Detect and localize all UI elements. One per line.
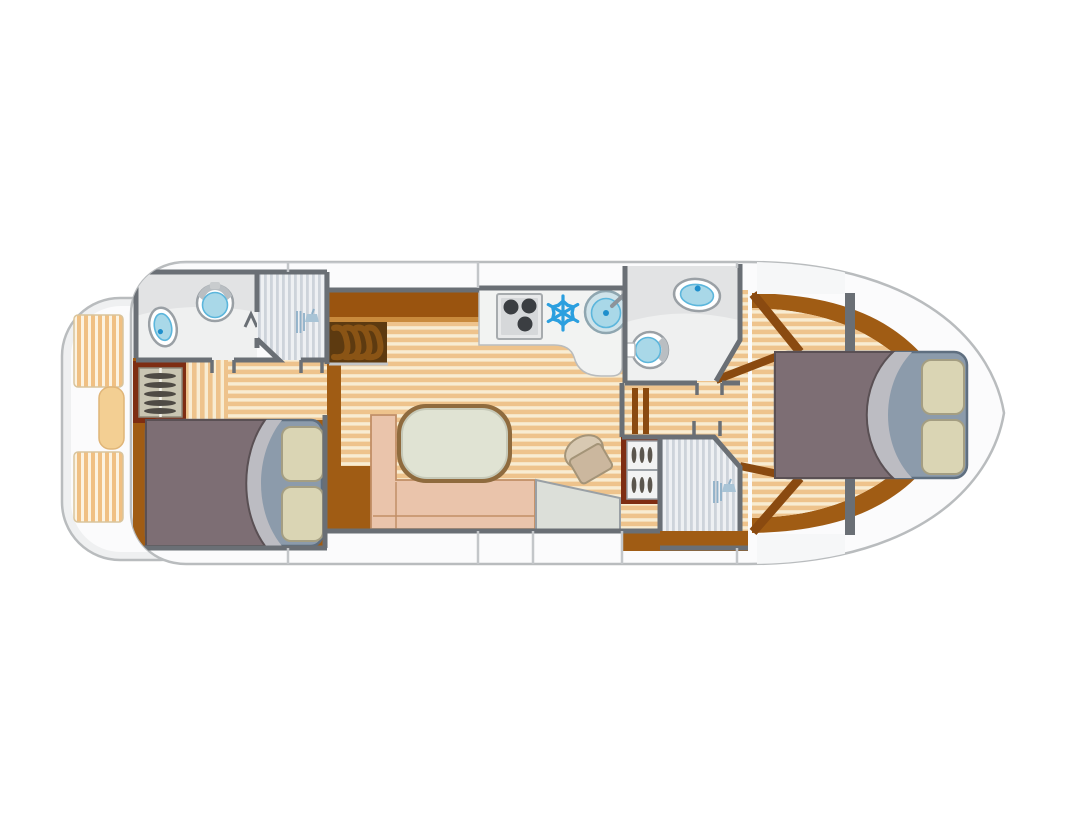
salon-sideboard-edge xyxy=(327,317,497,322)
bench-cushion xyxy=(74,315,123,387)
hanger xyxy=(640,477,645,493)
hanger xyxy=(640,447,645,463)
aft-bed-duvet xyxy=(146,420,265,546)
hanger xyxy=(144,408,176,414)
forward-wardrobe xyxy=(621,436,660,504)
hanger xyxy=(648,447,653,463)
aft-bathroom xyxy=(136,272,257,360)
faucet xyxy=(210,282,220,289)
salon-table xyxy=(397,404,512,483)
door-post xyxy=(643,388,649,434)
aft-corridor-floor xyxy=(228,358,328,422)
aft-bed-pillow xyxy=(282,427,323,481)
hanger xyxy=(648,477,653,493)
companionway-stairs xyxy=(327,322,388,364)
aft-double-bed xyxy=(146,420,323,546)
page-background: { "page": { "background": "#ffffff", "wi… xyxy=(0,0,1092,819)
hanger xyxy=(632,447,637,463)
burner xyxy=(518,317,533,332)
galley-sink xyxy=(585,291,628,333)
bow-bed-pillow xyxy=(922,360,964,414)
bench-cushion xyxy=(74,452,123,522)
seat-cushion xyxy=(99,387,124,449)
hanger xyxy=(144,382,176,388)
salon-wood-margin-left xyxy=(327,362,341,470)
bow-double-bed xyxy=(775,352,967,478)
bow-side-deck xyxy=(757,534,845,564)
hanger xyxy=(144,400,176,406)
hanger xyxy=(144,391,176,397)
salon-wood-margin-corner xyxy=(327,466,372,532)
bow-window-post xyxy=(845,293,855,353)
burner xyxy=(504,300,519,315)
aft-wardrobe xyxy=(133,361,186,423)
bow-side-deck xyxy=(757,262,845,294)
hanger xyxy=(632,477,637,493)
stove xyxy=(497,294,542,339)
forward-bathroom xyxy=(626,266,739,381)
bow-window-post xyxy=(845,475,855,535)
door-post xyxy=(632,388,638,434)
bow-bed-pillow xyxy=(922,420,964,474)
burner xyxy=(522,299,537,314)
hanger xyxy=(144,373,176,379)
aft-bed-pillow xyxy=(282,487,323,541)
boat-floor-plan xyxy=(0,0,1092,819)
